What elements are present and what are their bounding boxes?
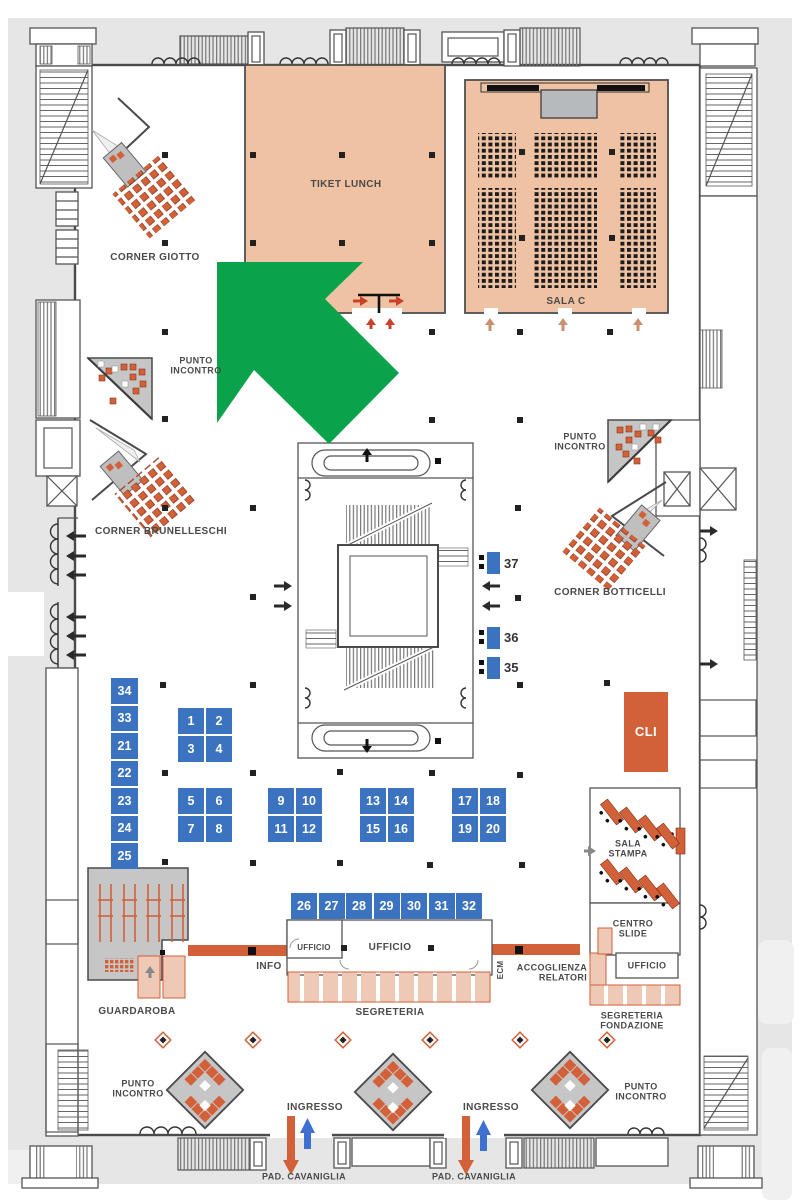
stand-35-label: 35 — [504, 660, 518, 675]
stand-21: 21 — [111, 733, 138, 759]
stand-5: 5 — [178, 788, 204, 814]
label-info: INFO — [256, 962, 282, 972]
stand-29: 29 — [374, 893, 400, 919]
stand-34: 34 — [111, 678, 138, 704]
floorplan-drawing — [0, 0, 800, 1200]
label-centro-slide: CENTRO SLIDE — [613, 920, 653, 939]
stand-27: 27 — [319, 893, 345, 919]
stand-13: 13 — [360, 788, 386, 814]
label-sala-stampa: SALA STAMPA — [608, 840, 647, 859]
stand-32: 32 — [456, 893, 482, 919]
stand-row-26-32: 26 27 28 29 30 31 32 — [291, 893, 482, 919]
stand-17: 17 — [452, 788, 478, 814]
label-punto-incontro-nw: PUNTO INCONTRO — [170, 357, 221, 376]
label-cli: CLI — [635, 727, 657, 737]
stand-3: 3 — [178, 736, 204, 762]
label-guardaroba: GUARDAROBA — [98, 1007, 175, 1017]
label-pad-cavaniglia-right: PAD. CAVANIGLIA — [432, 1172, 516, 1182]
label-ufficio-small: UFFICIO — [297, 943, 330, 953]
stand-12: 12 — [296, 816, 322, 842]
label-ingresso-left: INGRESSO — [287, 1103, 343, 1113]
stand-20: 20 — [480, 816, 506, 842]
stand-19: 19 — [452, 816, 478, 842]
stand-23: 23 — [111, 788, 138, 814]
label-ufficio-right: UFFICIO — [628, 961, 667, 971]
floorplan: CORNER GIOTTO TIKET LUNCH SALA C PUNTO I… — [0, 0, 800, 1200]
stand-31: 31 — [429, 893, 455, 919]
label-ingresso-right: INGRESSO — [463, 1103, 519, 1113]
stand-26: 26 — [291, 893, 317, 919]
stand-36-label: 36 — [504, 630, 518, 645]
stand-group-17-20: 17 18 19 20 — [452, 788, 506, 842]
stand-group-5-8: 5 6 7 8 — [178, 788, 232, 842]
stand-15: 15 — [360, 816, 386, 842]
stand-14: 14 — [388, 788, 414, 814]
stand-9: 9 — [268, 788, 294, 814]
stand-33: 33 — [111, 706, 138, 732]
stand-7: 7 — [178, 816, 204, 842]
label-punto-incontro-se: PUNTO INCONTRO — [615, 1083, 666, 1102]
stand-1: 1 — [178, 708, 204, 734]
stand-30: 30 — [401, 893, 427, 919]
stand-11: 11 — [268, 816, 294, 842]
label-corner-giotto: CORNER GIOTTO — [110, 253, 199, 263]
stand-18: 18 — [480, 788, 506, 814]
label-ecm: ECM — [496, 961, 506, 979]
stand-4: 4 — [206, 736, 232, 762]
stand-22: 22 — [111, 761, 138, 787]
stand-28: 28 — [346, 893, 372, 919]
stand-group-13-16: 13 14 15 16 — [360, 788, 414, 842]
label-punto-incontro-sw: PUNTO INCONTRO — [112, 1080, 163, 1099]
stand-10: 10 — [296, 788, 322, 814]
label-tiket-lunch: TIKET LUNCH — [310, 180, 381, 190]
label-corner-botticelli: CORNER BOTTICELLI — [554, 588, 666, 598]
label-sala-c: SALA C — [546, 297, 585, 307]
label-punto-incontro-ne: PUNTO INCONTRO — [554, 433, 605, 452]
stand-group-9-12: 9 10 11 12 — [268, 788, 322, 842]
label-corner-brunelleschi: CORNER BRUNELLESCHI — [95, 527, 227, 537]
label-accoglienza-relatori: ACCOGLIENZA RELATORI — [517, 964, 587, 983]
stand-25: 25 — [111, 843, 138, 869]
label-segreteria: SEGRETERIA — [355, 1008, 424, 1018]
stand-group-1-4: 1 2 3 4 — [178, 708, 232, 762]
label-segreteria-fondazione: SEGRETERIA FONDAZIONE — [600, 1012, 664, 1031]
stand-37-label: 37 — [504, 556, 518, 571]
stand-16: 16 — [388, 816, 414, 842]
stand-column-left: 34 33 21 22 23 24 25 — [111, 678, 138, 869]
stand-8: 8 — [206, 816, 232, 842]
stand-24: 24 — [111, 816, 138, 842]
label-ufficio-main: UFFICIO — [369, 943, 412, 953]
stand-6: 6 — [206, 788, 232, 814]
label-pad-cavaniglia-left: PAD. CAVANIGLIA — [262, 1172, 346, 1182]
stand-2: 2 — [206, 708, 232, 734]
